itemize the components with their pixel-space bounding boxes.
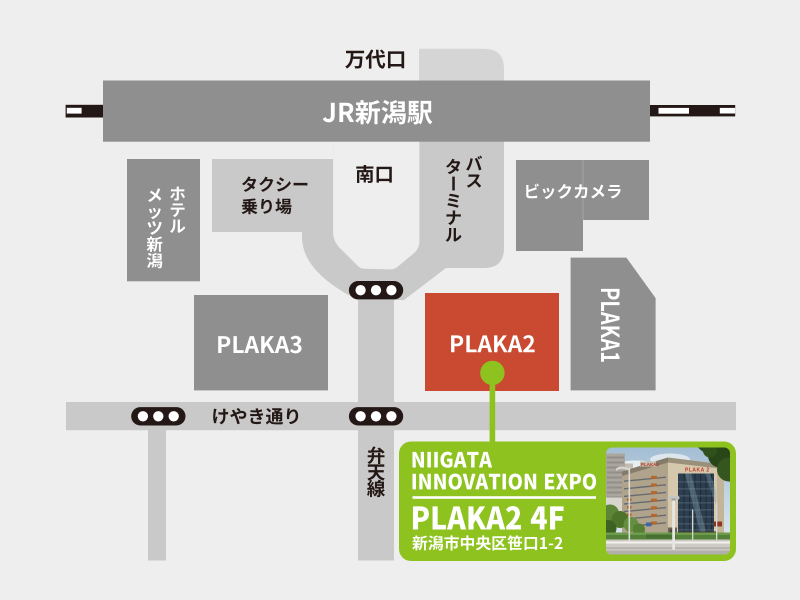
svg-text:PLAKA 2: PLAKA 2 (685, 468, 710, 474)
svg-text:PLAKA3: PLAKA3 (641, 462, 659, 467)
